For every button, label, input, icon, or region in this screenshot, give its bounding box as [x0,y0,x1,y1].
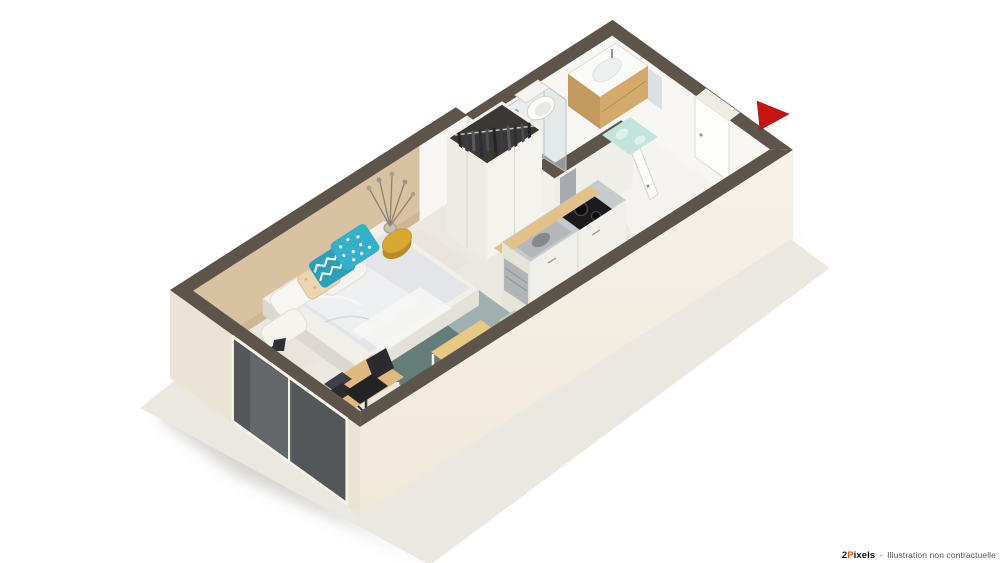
watermark-separator: - [880,550,883,560]
bathroom-door-handle [647,185,650,188]
entrance-arrow-icon [757,101,789,130]
floorplan-page: 2Pixels - Illustration non contractuelle [0,0,1000,563]
apartment-illustration [0,0,1000,563]
watermark-note: Illustration non contractuelle [887,550,996,560]
brand-logo-rest: ixels [854,550,876,561]
watermark: 2Pixels - Illustration non contractuelle [842,550,996,561]
entrance-door-handle [699,133,702,136]
